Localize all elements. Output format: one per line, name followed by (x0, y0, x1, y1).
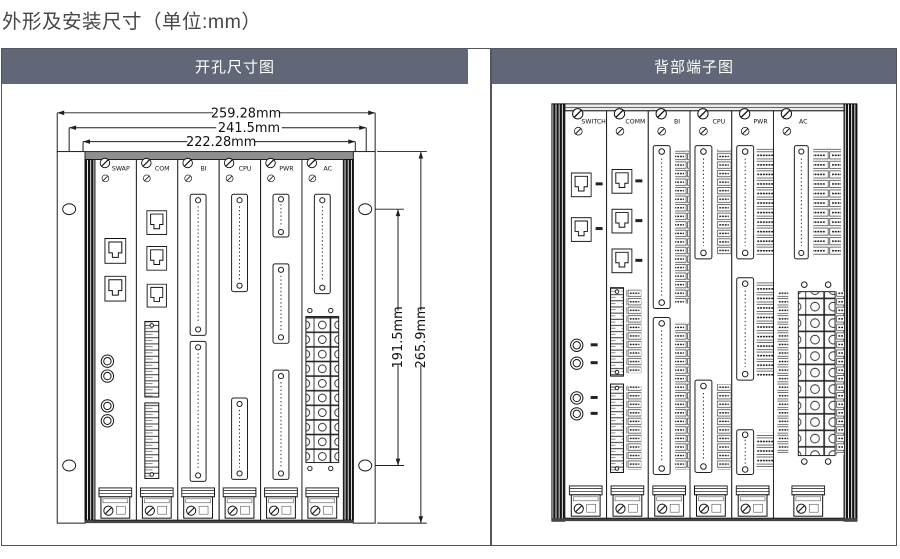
ethernet-port (571, 173, 591, 197)
fiber-port (571, 339, 583, 351)
fiber-port (101, 355, 113, 367)
connector (190, 341, 206, 481)
module-pwr: PWR (261, 158, 302, 520)
module-label: CPU (239, 165, 252, 172)
fiber-port (571, 357, 583, 369)
connector (273, 194, 289, 237)
dim-width-holes: 241.5mm (218, 121, 280, 136)
module-com: COM (136, 158, 177, 520)
screw-icon (268, 175, 275, 182)
extraction-handle (736, 486, 769, 516)
fiber-port (101, 370, 113, 382)
cutout-drawing: 259.28mm 241.5mm 222.28mm 191.5mm 265.9m… (2, 84, 490, 545)
rack-rail-left (85, 160, 95, 521)
dim-height-holes: 191.5mm (391, 306, 406, 368)
connector (737, 146, 754, 259)
connector (314, 194, 330, 293)
module-switch: SWITCH (565, 109, 607, 519)
terminal-strip (145, 321, 159, 397)
terminal-labels (717, 384, 731, 469)
terminal-labels (717, 150, 731, 255)
dim-width-outer: 259.28mm (211, 106, 281, 121)
module-cpu: CPU (219, 158, 260, 520)
extraction-handle (653, 486, 686, 516)
mounting-hole (63, 460, 76, 471)
screw-icon (143, 175, 150, 182)
terminal-strip (611, 384, 624, 472)
screw-icon (226, 175, 233, 182)
connector (273, 370, 289, 479)
ethernet-port (612, 170, 632, 194)
header-right-label: 背部端子图 (654, 56, 734, 77)
terminal-matrix (306, 316, 339, 462)
connector (232, 398, 248, 479)
screw-icon (740, 109, 750, 119)
module-label: COM (155, 165, 170, 172)
screw-icon (741, 127, 749, 135)
connector (695, 146, 712, 259)
cutout-dimension-diagram: 259.28mm 241.5mm 222.28mm 191.5mm 265.9m… (2, 84, 490, 545)
rack-rail-left (552, 104, 565, 521)
terminal-labels (777, 292, 788, 455)
ethernet-port (147, 247, 167, 271)
module-label: BI (201, 165, 207, 172)
terminal-labels (675, 322, 689, 469)
connector (653, 317, 670, 474)
dimension-table: 开孔尺寸图 背部端子图 (1, 48, 897, 546)
terminal-labels (813, 149, 841, 256)
module-label: SWAP (112, 165, 130, 172)
module-label: AC (324, 165, 333, 172)
ethernet-port (147, 211, 167, 235)
extraction-handle (140, 488, 173, 518)
fiber-port (571, 392, 583, 404)
screw-icon (614, 109, 624, 119)
mounting-hole (63, 204, 76, 215)
module-comm: COMM (607, 109, 649, 519)
extraction-handle (223, 488, 256, 518)
connector (794, 146, 808, 259)
rear-drawing: SWITCH COMM (492, 84, 895, 545)
terminal-labels (626, 386, 641, 469)
screw-icon (781, 109, 791, 119)
fiber-port (101, 415, 113, 427)
terminal-strip (611, 288, 624, 376)
screw-icon (700, 127, 708, 135)
header-rear-terminals: 背部端子图 (492, 49, 896, 84)
module-label: COMM (625, 119, 645, 126)
screw-icon (142, 158, 151, 167)
screw-icon (574, 127, 582, 135)
extraction-handle (694, 486, 727, 516)
module-label: SWITCH (581, 119, 606, 126)
screw-icon (266, 158, 275, 167)
ethernet-port (612, 249, 632, 273)
connector (653, 146, 670, 309)
ethernet-port (147, 284, 166, 307)
extraction-handle (792, 486, 825, 516)
module-bi: BI (648, 109, 690, 519)
connector (232, 194, 248, 291)
header-cutout-dimensions: 开孔尺寸图 (2, 49, 468, 84)
screw-icon (100, 158, 109, 167)
rack-rail-right (343, 160, 353, 521)
rack-rail-right (844, 104, 857, 521)
screw-icon (658, 127, 666, 135)
screw-icon (185, 175, 192, 182)
connector (737, 430, 754, 475)
header-left-label: 开孔尺寸图 (195, 56, 275, 77)
ethernet-port (612, 209, 632, 233)
screw-icon (698, 109, 708, 119)
page-title: 外形及安装尺寸（单位:mm） (2, 5, 261, 34)
screw-icon (656, 109, 666, 119)
module-swap: SWAP (95, 158, 136, 520)
module-label: PWR (279, 165, 294, 172)
module-ac: AC (773, 109, 844, 519)
connector (695, 380, 712, 472)
fiber-port (571, 408, 583, 420)
terminal-labels (835, 292, 844, 455)
terminal-labels (675, 151, 689, 304)
module-ac: AC (302, 158, 343, 520)
mounting-hole (359, 204, 372, 215)
ethernet-port (105, 238, 126, 263)
screw-icon (783, 127, 791, 135)
fiber-port (101, 400, 113, 412)
screw-icon (224, 158, 233, 167)
rear-terminal-diagram: SWITCH COMM (492, 84, 896, 545)
connector (273, 264, 289, 343)
module-label: CPU (712, 119, 725, 126)
extraction-handle (265, 488, 298, 518)
extraction-handle (182, 488, 215, 518)
screw-icon (616, 127, 624, 135)
module-cpu: CPU (690, 109, 732, 519)
mounting-hole (359, 460, 372, 471)
module-label: BI (674, 119, 680, 126)
module-label: PWR (753, 119, 768, 126)
screw-icon (102, 175, 109, 182)
extraction-handle (306, 488, 339, 518)
extraction-handle (569, 486, 602, 516)
dim-height-overall: 265.9mm (414, 306, 429, 368)
screw-icon (183, 158, 192, 167)
screw-icon (309, 175, 316, 182)
screw-icon (573, 109, 583, 119)
screw-icon (307, 158, 316, 167)
terminal-matrix (798, 292, 835, 456)
module-label: AC (799, 119, 808, 126)
module-bi: BI (178, 158, 219, 520)
terminal-labels (626, 290, 641, 373)
extraction-handle (99, 488, 132, 518)
ethernet-port (105, 276, 126, 301)
terminal-strip (145, 403, 159, 479)
connector (190, 194, 206, 335)
ethernet-port (571, 218, 591, 242)
extraction-handle (611, 486, 644, 516)
dim-width-body: 222.28mm (186, 135, 256, 150)
connector (737, 278, 754, 380)
